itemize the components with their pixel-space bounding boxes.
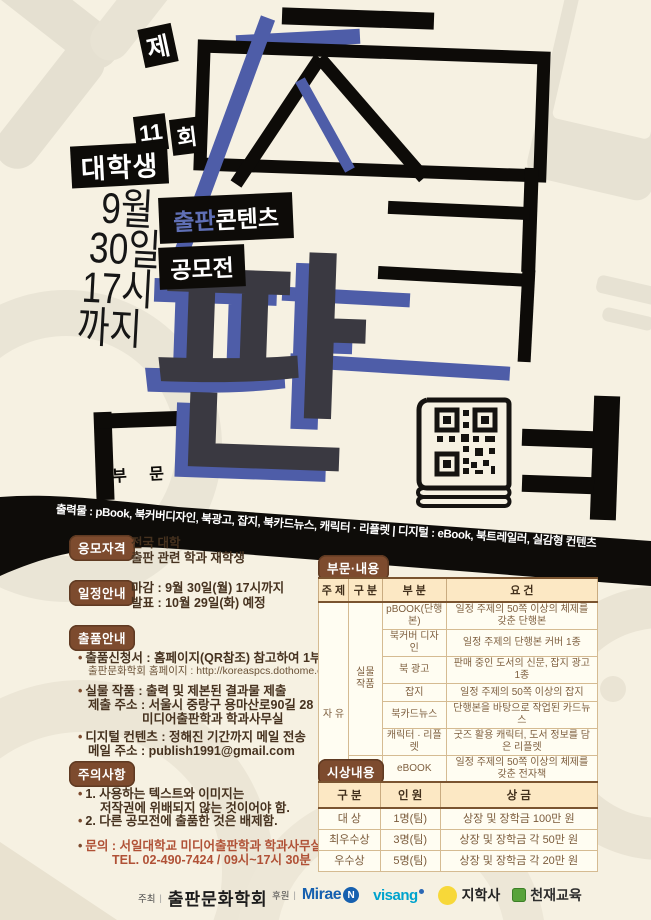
grade-cell: 우수상: [319, 851, 381, 872]
award-table: 구 분 인 원 상 금 대 상 1명(팀) 상장 및 장학금 100만 원 최우…: [318, 781, 598, 872]
count-cell: 1명(팀): [380, 808, 440, 830]
col-group: 구 분: [348, 578, 382, 602]
submission-b2-text: 실물 작품 : 출력 및 제본된 결과물 제출: [85, 684, 286, 698]
eligibility-line2: 출판 관련 학과 재학생: [131, 551, 245, 566]
part-cell: 캐릭터 · 리플렛: [382, 729, 446, 756]
schedule-line2: 발표 : 10월 29일(화) 예정: [131, 596, 284, 611]
divider: |: [159, 893, 161, 903]
bullet-dot: •: [78, 651, 82, 665]
contact-line2: TEL. 02-490-7424 / 09시~17시 30분: [112, 853, 322, 867]
badge-schedule: 일정안내: [69, 580, 135, 606]
req-cell: 일정 주제의 50쪽 이상의 체제를 갖춘 단행본: [446, 602, 597, 630]
eligibility-line1: 전국 대학: [131, 536, 245, 551]
col-theme: 주 제: [319, 578, 349, 602]
host-group: 주최 | 출판문화학회: [138, 885, 268, 910]
title-part-white: 콘텐츠: [215, 199, 280, 236]
part-cell: eBOOK: [382, 756, 446, 783]
miraen-logo: Mirae: [302, 886, 341, 904]
notice-b1-text: 1. 사용하는 텍스트와 이미지는: [85, 787, 244, 801]
je-text: 제: [143, 26, 173, 66]
title-part-blue: 출판: [172, 201, 216, 237]
bullet-dot: •: [78, 787, 82, 801]
req-cell: 일정 주제의 단행본 커버 1종: [446, 630, 597, 657]
prize-cell: 상장 및 장학금 100만 원: [440, 808, 597, 830]
title-box-contest: 공모전: [158, 244, 246, 290]
host-logo: 출판문화학회: [168, 885, 268, 910]
part-cell: pBOOK(단행본): [382, 602, 446, 630]
table-header-row: 주 제 구 분 부 분 요 건: [319, 578, 598, 602]
req-cell: 일정 주제의 50쪽 이상의 체제를 갖춘 전자책: [446, 756, 597, 783]
chunjae-square-icon: [512, 888, 526, 902]
count-cell: 5명(팀): [380, 851, 440, 872]
req-cell: 단행본을 바탕으로 작업된 카드뉴스: [446, 702, 597, 729]
audience-text: 대학생: [80, 143, 159, 186]
req-cell: 굿즈 활용 캐릭터, 도서 정보를 담은 리플렛: [446, 729, 597, 756]
visang-dot-icon: [419, 889, 424, 894]
group-physical-cell: 실물 작품: [348, 602, 382, 756]
part-cell: 잡지: [382, 684, 446, 702]
badge-notice: 주의사항: [69, 761, 135, 787]
grade-cell: 최우수상: [319, 830, 381, 851]
eligibility-text: 전국 대학 출판 관련 학과 재학생: [131, 536, 245, 566]
part-cell: 북커버 디자인: [382, 630, 446, 657]
col-req: 요 건: [446, 578, 597, 602]
part-cell: 북카드뉴스: [382, 702, 446, 729]
notice-b2-text: 2. 다른 공모전에 출품한 것은 배제함.: [85, 814, 277, 828]
table-row: 최우수상 3명(팀) 상장 및 장학금 각 50만 원: [319, 830, 598, 851]
submission-bullet-1: •출품신청서 : 홈페이지(QR참조) 참고하여 1부 제출 출판문화학회 홈페…: [78, 651, 348, 678]
prize-cell: 상장 및 장학금 각 50만 원: [440, 830, 597, 851]
contact-line1: 문의 : 서일대학교 미디어출판학과 학과사무실: [85, 839, 322, 853]
deadline-line: 까지: [76, 307, 156, 351]
submission-bullet-3: •디지털 컨텐츠 : 정해진 기간까지 메일 전송 메일 주소 : publis…: [78, 730, 306, 758]
col-prize: 상 금: [440, 782, 597, 808]
table-header-row: 구 분 인 원 상 금: [319, 782, 598, 808]
miraen-circle-icon: N: [343, 887, 359, 903]
visang-logo: visang: [373, 887, 418, 904]
bg-pattern-dot: [600, 676, 626, 702]
grade-cell: 대 상: [319, 808, 381, 830]
bullet-dot: •: [78, 839, 82, 853]
prize-cell: 상장 및 장학금 각 20만 원: [440, 851, 597, 872]
col-grade: 구 분: [319, 782, 381, 808]
table-row: 대 상 1명(팀) 상장 및 장학금 100만 원: [319, 808, 598, 830]
schedule-text: 마감 : 9월 30일(월) 17시까지 발표 : 10월 29일(화) 예정: [131, 581, 284, 611]
submission-b1-sub[interactable]: 출판문화학회 홈페이지 : http://koreaspcs.dothome.c…: [88, 665, 348, 678]
notice-bullet-1: •1. 사용하는 텍스트와 이미지는 저작권에 위배되지 않는 것이어야 함.: [78, 787, 290, 815]
poster: 판 제 11 회 대학생 9월 30일 17시 까지 출판콘텐츠 공모전 부 문: [0, 0, 651, 920]
submission-b2-sub1: 제출 주소 : 서울시 중랑구 용마산로90길 28: [88, 698, 313, 712]
bullet-dot: •: [78, 730, 82, 744]
jihaksa-circle-icon: [438, 886, 457, 905]
notice-b1-sub: 저작권에 위배되지 않는 것이어야 함.: [100, 801, 290, 815]
badge-submission: 출품안내: [69, 625, 135, 651]
badge-eligibility: 응모자격: [69, 535, 135, 561]
submission-b3-sub[interactable]: 메일 주소 : publish1991@gmail.com: [88, 744, 306, 758]
title-contest-text: 공모전: [170, 249, 235, 286]
count-cell: 3명(팀): [380, 830, 440, 851]
submission-bullet-2: •실물 작품 : 출력 및 제본된 결과물 제출 제출 주소 : 서울시 중랑구…: [78, 684, 313, 726]
col-part: 부 분: [382, 578, 446, 602]
badge-audience: 대학생: [70, 141, 169, 188]
chunjae-logo: 천재교육: [530, 885, 582, 905]
host-label: 주최: [138, 891, 155, 905]
schedule-line1: 마감 : 9월 30일(월) 17시까지: [131, 581, 284, 596]
badge-hoe: 회: [169, 116, 205, 156]
submission-b3-text: 디지털 컨텐츠 : 정해진 기간까지 메일 전송: [85, 730, 306, 744]
table-row: 자 유 실물 작품 pBOOK(단행본) 일정 주제의 50쪽 이상의 체제를 …: [319, 602, 598, 630]
bullet-dot: •: [78, 684, 82, 698]
part-cell: 북 광고: [382, 657, 446, 684]
req-cell: 일정 주제의 50쪽 이상의 잡지: [446, 684, 597, 702]
bullet-dot: •: [78, 814, 82, 828]
notice-bullet-2: •2. 다른 공모전에 출품한 것은 배제함.: [78, 814, 278, 828]
sponsor-group: 후원 | Mirae N visang 지학사 천재교육: [272, 885, 582, 905]
jihaksa-logo: 지학사: [462, 885, 501, 905]
req-cell: 판매 중인 도서의 신문, 잡지 광고 1종: [446, 657, 597, 684]
title-box-publishing-contents: 출판콘텐츠: [158, 192, 294, 244]
col-count: 인 원: [380, 782, 440, 808]
notice-contact: •문의 : 서일대학교 미디어출판학과 학과사무실 TEL. 02-490-74…: [78, 839, 322, 867]
hoe-text: 회: [175, 119, 199, 153]
submission-b1-text: 출품신청서 : 홈페이지(QR참조) 참고하여 1부 제출: [85, 651, 348, 665]
submission-b2-sub2: 미디어출판학과 학과사무실: [142, 712, 313, 726]
divider: |: [293, 890, 295, 900]
sponsor-label: 후원: [272, 888, 289, 902]
table-row: 우수상 5명(팀) 상장 및 장학금 각 20만 원: [319, 851, 598, 872]
